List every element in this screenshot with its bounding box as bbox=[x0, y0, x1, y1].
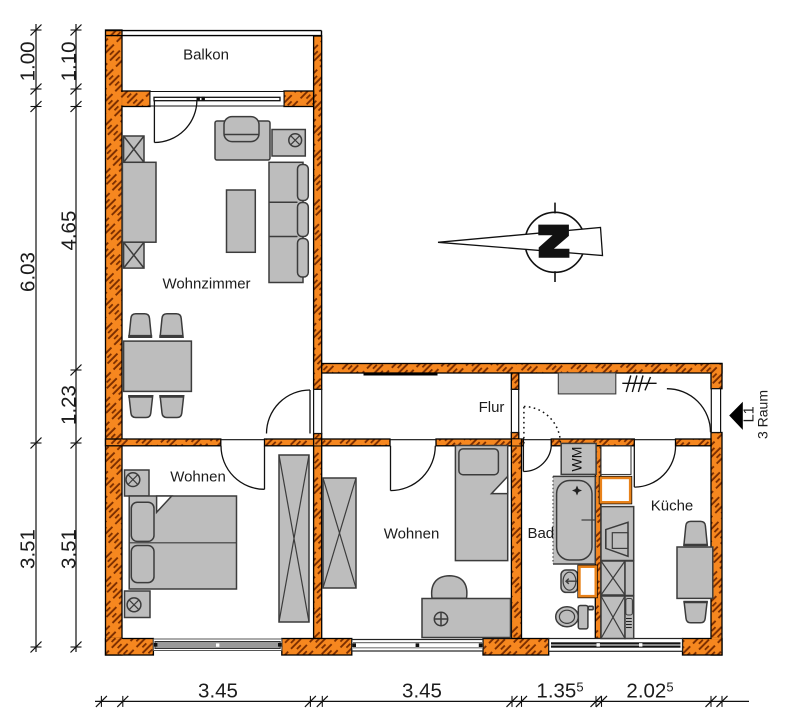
svg-text:Wohnen: Wohnen bbox=[170, 469, 226, 486]
svg-text:3.51: 3.51 bbox=[17, 529, 40, 569]
svg-text:4.65: 4.65 bbox=[58, 211, 81, 251]
svg-text:Wohnen: Wohnen bbox=[384, 526, 440, 543]
svg-text:WM: WM bbox=[569, 447, 585, 472]
svg-text:Balkon: Balkon bbox=[183, 47, 229, 64]
svg-text:Flur: Flur bbox=[479, 399, 505, 416]
svg-text:1.10: 1.10 bbox=[58, 41, 81, 81]
svg-text:3.45: 3.45 bbox=[402, 680, 442, 703]
svg-text:1.23: 1.23 bbox=[58, 385, 81, 425]
svg-text:3.45: 3.45 bbox=[198, 680, 238, 703]
svg-text:3 Raum: 3 Raum bbox=[755, 390, 771, 439]
svg-text:Küche: Küche bbox=[651, 498, 694, 515]
svg-text:6.03: 6.03 bbox=[17, 252, 40, 292]
svg-text:1.00: 1.00 bbox=[17, 41, 40, 81]
svg-text:Bad: Bad bbox=[527, 525, 554, 542]
svg-text:3.51: 3.51 bbox=[58, 529, 81, 569]
svg-text:Wohnzimmer: Wohnzimmer bbox=[162, 276, 250, 293]
